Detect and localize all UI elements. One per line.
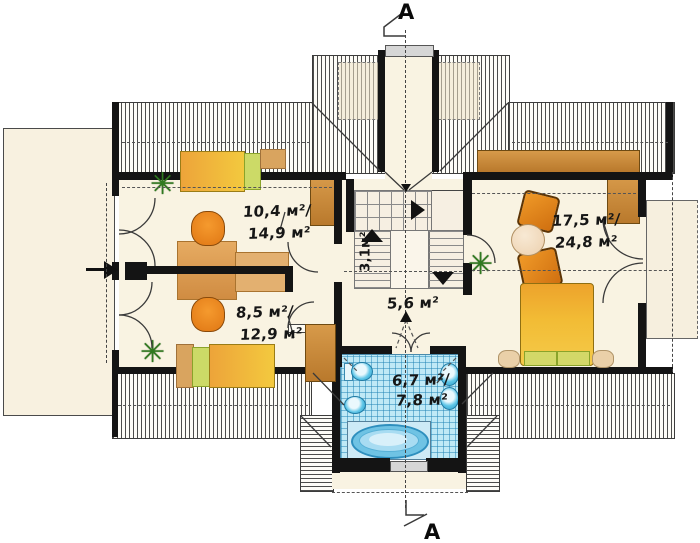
bed-top-left-room — [180, 151, 245, 192]
height-line-top-right — [512, 142, 668, 143]
height-line-bottom-right — [470, 405, 670, 406]
overhang-line-right — [672, 172, 673, 372]
height-line-bottom-left — [118, 405, 308, 406]
office-chair-top — [191, 211, 225, 246]
shelf-bedroom-long — [477, 150, 640, 173]
wall-divider-bar — [147, 266, 293, 274]
section-marker-bottom: A — [424, 520, 440, 543]
roof-window-right — [438, 62, 480, 120]
plant-icon: ✳ — [150, 170, 175, 200]
wall-dormer-left — [378, 50, 385, 172]
toilet — [351, 362, 373, 381]
section-line-a — [405, 30, 406, 508]
pillow-top-left-room — [244, 153, 261, 190]
pillow-double-bed-left — [524, 351, 557, 366]
wall-bathroom-top-left — [334, 346, 392, 354]
bed-bottom-left-room — [209, 344, 275, 388]
bathtub-water — [369, 433, 407, 446]
nightstand-left — [498, 350, 520, 368]
wall-divider-cap — [285, 266, 293, 292]
wall-stairs-left — [346, 179, 354, 232]
stairs-arrow-right-icon — [411, 200, 425, 220]
roof-window-left — [338, 62, 380, 120]
floor-dormer-corridor — [385, 54, 432, 190]
section-marker-top: A — [398, 0, 414, 24]
wall-dormer-right — [432, 50, 439, 172]
wall-partition-upper — [334, 179, 342, 244]
dormer-overhang-line — [332, 492, 468, 493]
roof-dormer-side-right — [466, 415, 500, 492]
room-label-bottom-left-1: 8,5 м²/ — [235, 302, 294, 321]
wall-bedroom-east-upper — [638, 172, 646, 217]
ridge-line-right — [472, 270, 672, 271]
wall-divider-block — [125, 262, 147, 280]
entry-arrow-shaft — [86, 268, 104, 271]
bidet — [344, 396, 366, 414]
room-label-top-left-2: 14,9 м² — [247, 223, 311, 243]
roof-dormer-side-left — [300, 415, 334, 492]
stairs-arrow-down-icon — [432, 272, 454, 285]
wall-right-roof-edge — [666, 102, 673, 172]
room-label-top-left-1: 10,4 м²/ — [242, 201, 311, 221]
wall-bedroom-east-lower — [638, 303, 646, 372]
wardrobe-top-left-room — [310, 176, 336, 226]
round-table — [511, 224, 545, 256]
bathroom-window — [390, 461, 428, 472]
shelf-top-left-room — [260, 149, 286, 169]
floor-dormer-strip — [332, 472, 466, 489]
wall-left-roof-edge — [112, 102, 119, 172]
dormer-window — [385, 45, 434, 57]
room-label-bedroom-2: 24,8 м² — [554, 232, 618, 252]
room-label-bedroom-1: 17,5 м²/ — [551, 210, 620, 230]
wall-left-3 — [112, 350, 119, 368]
room-label-bathroom-2: 7,8 м² — [395, 390, 448, 409]
height-line-top-left — [122, 142, 310, 143]
room-label-hall: 5,6 м² — [386, 293, 439, 312]
room-label-bottom-left-2: 12,9 м² — [239, 324, 303, 344]
stairs-landing — [390, 230, 430, 289]
nightstand-right — [592, 350, 614, 368]
height-line-bedroom — [472, 193, 636, 194]
plant-icon: ✳ — [140, 338, 165, 368]
terrace — [3, 128, 115, 416]
wall-bathroom-bottom-left — [338, 458, 390, 472]
pillow-double-bed-right — [557, 351, 590, 366]
floor-plan: ✳ ✳ ✳ — [0, 0, 700, 543]
wall-bedroom-west-upper — [463, 179, 472, 235]
wall-bathroom-bottom-right — [426, 458, 458, 472]
wall-left-1 — [112, 179, 119, 196]
room-label-bathroom-1: 6,7 м²/ — [391, 370, 450, 389]
room-label-stairs: 3,1м² — [359, 230, 374, 274]
wardrobe-bottom-left-room — [305, 324, 336, 382]
office-chair-bottom — [191, 297, 225, 332]
plant-icon: ✳ — [468, 250, 493, 280]
height-line-room-top-left — [122, 187, 332, 188]
wall-bathroom-right — [458, 346, 466, 473]
overhang-line-left — [106, 183, 107, 363]
